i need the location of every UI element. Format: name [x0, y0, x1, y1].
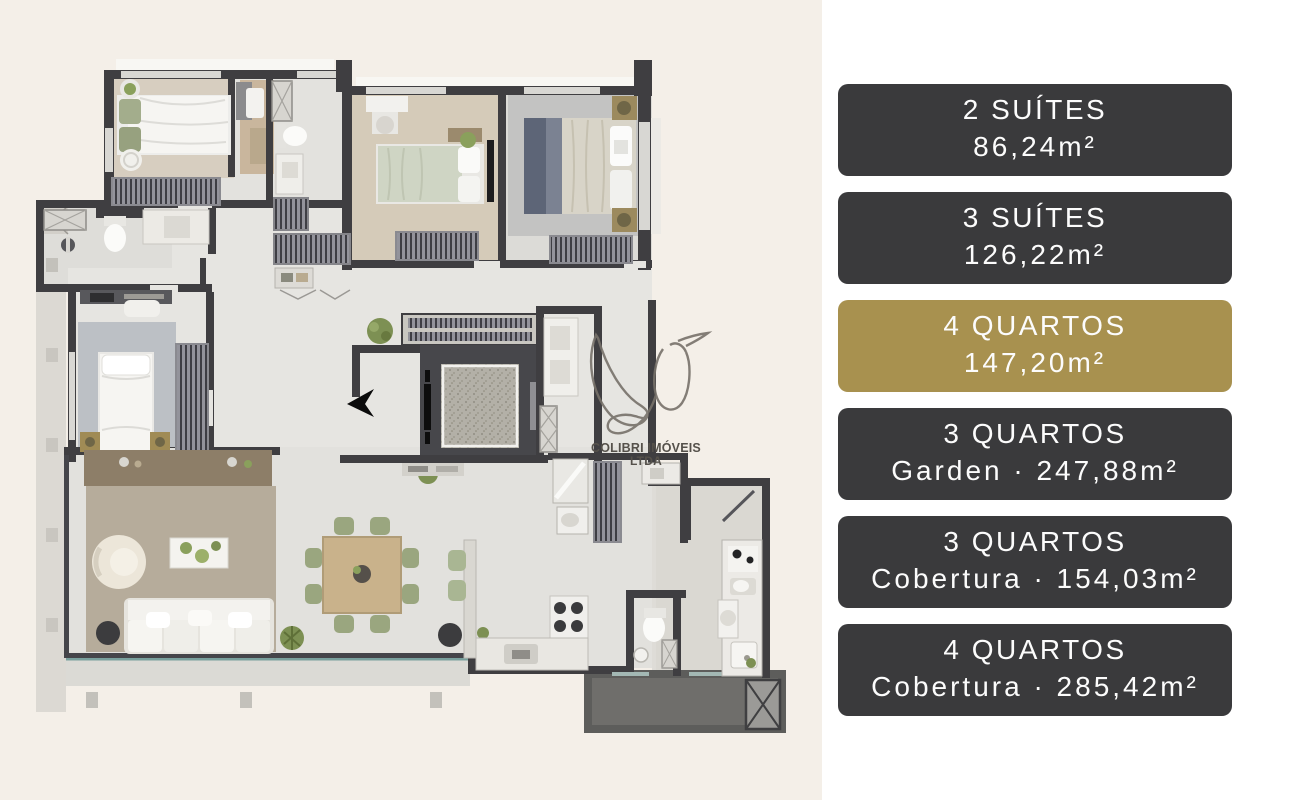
- svg-text:LTDA: LTDA: [630, 454, 662, 468]
- svg-text:COLIBRI IMÓVEIS: COLIBRI IMÓVEIS: [591, 440, 701, 455]
